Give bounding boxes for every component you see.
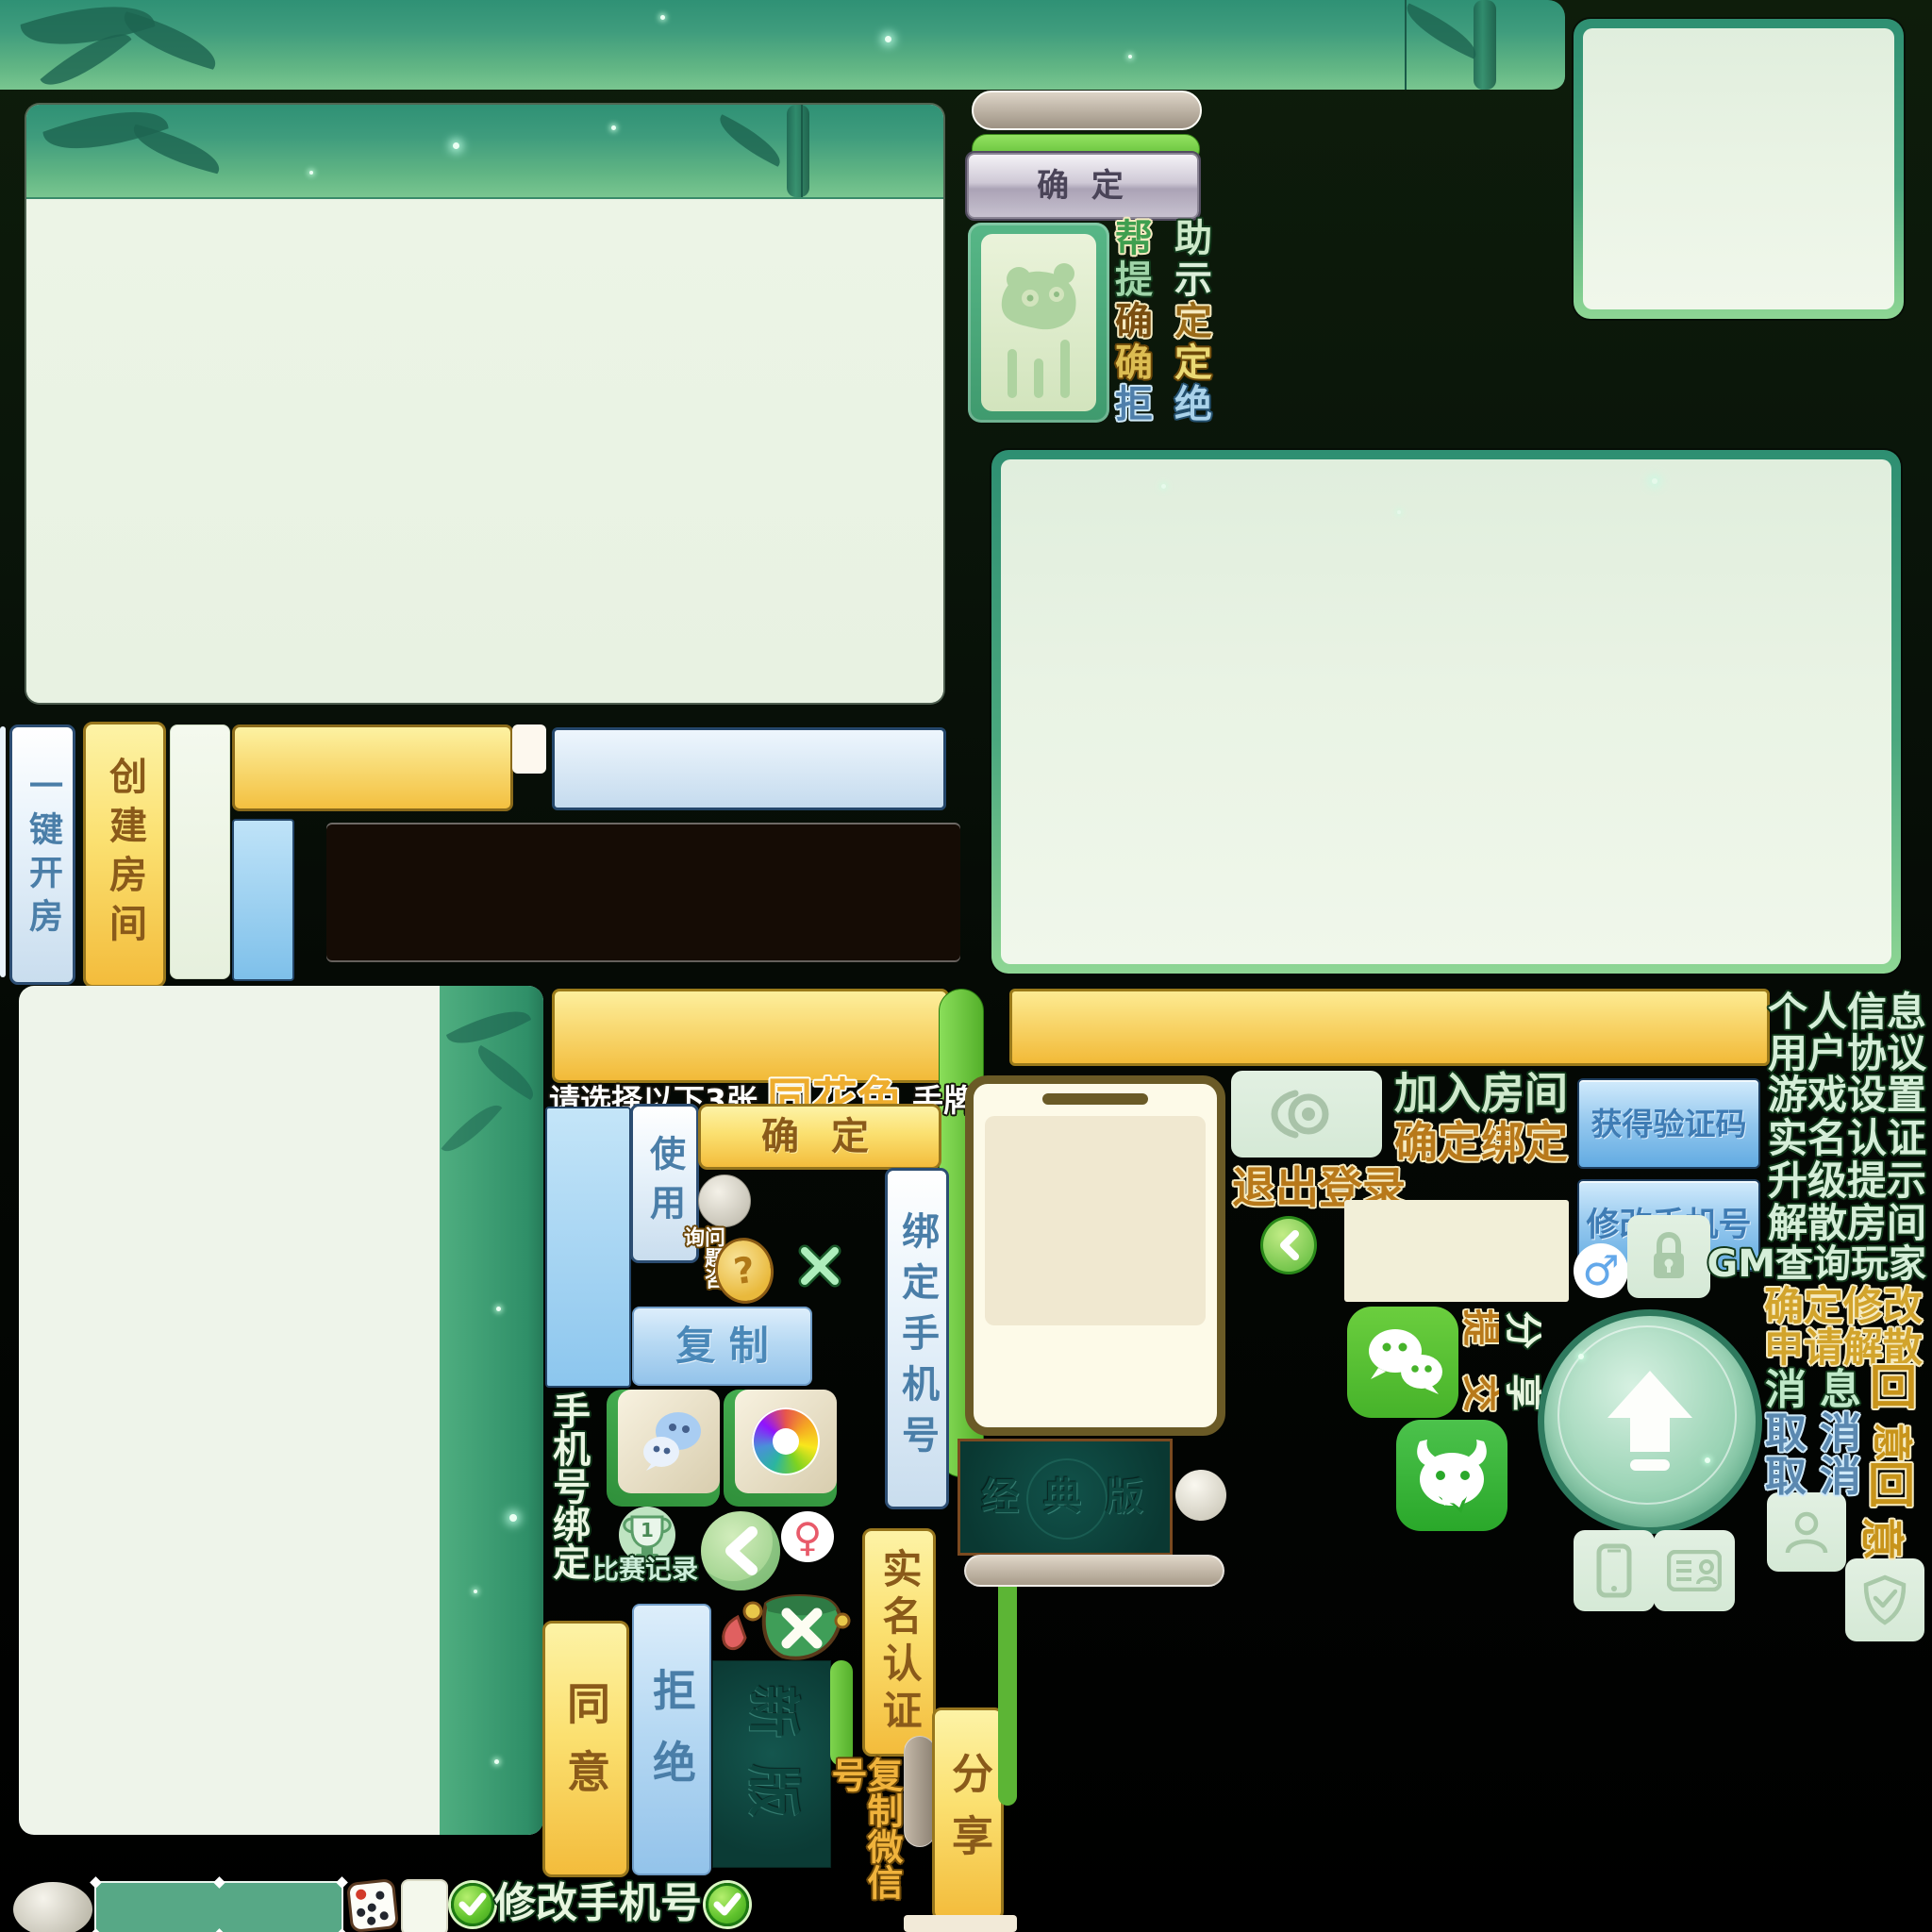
upload-circle-button[interactable] (1538, 1309, 1762, 1534)
msg-char-1: 消 (1765, 1370, 1807, 1411)
confirm-bind-label: 确定绑定 (1394, 1121, 1568, 1164)
word-pair-column-b: 助 示 定 定 绝 (1173, 220, 1214, 424)
green-pill-small (830, 1660, 853, 1766)
cancel1-char-2: 消 (1820, 1413, 1861, 1455)
male-symbol: ♂ (1582, 1247, 1619, 1295)
agree-label: 同意 (564, 1681, 608, 1817)
phone-screen (985, 1116, 1206, 1325)
blue-tall-tile (545, 1107, 631, 1388)
back-chevron-small-button[interactable] (1260, 1216, 1317, 1274)
agree-rot-char-2: 意 (1860, 1517, 1904, 1560)
confirm-grey-label: 确 定 (1037, 170, 1129, 202)
realname-auth-label: 实名认证 (879, 1548, 919, 1737)
word-pair-column-a: 帮 提 确 确 拒 (1113, 220, 1155, 424)
use-label: 使用 (647, 1135, 683, 1233)
shield-check-icon (1861, 1574, 1908, 1626)
question-mark: ? (731, 1249, 758, 1293)
check-icon-right[interactable] (706, 1883, 749, 1926)
banner-strip (0, 0, 1565, 90)
aperture-camera-icon (752, 1407, 820, 1475)
cream-sliver (904, 1915, 1017, 1932)
refuse-button[interactable]: 拒绝 (632, 1604, 711, 1875)
white-tile-small (401, 1879, 448, 1932)
grey-pill-vertical (904, 1736, 936, 1847)
person-tile-button[interactable] (1767, 1492, 1846, 1572)
menu-user-agreement: 用户协议 (1768, 1034, 1926, 1074)
realname-auth-button[interactable]: 实名认证 (862, 1528, 936, 1757)
upload-arrow-icon (1598, 1365, 1702, 1478)
join-room-label: 加入房间 (1394, 1072, 1568, 1115)
share-rot-char-2: 享 (1500, 1370, 1541, 1411)
confirm-button-yellow[interactable]: 确 定 (698, 1104, 941, 1170)
back-chevron-button[interactable] (701, 1511, 780, 1591)
bind-phone-button[interactable]: 绑定手机号 (885, 1168, 949, 1509)
right-large-panel (991, 450, 1901, 974)
white-orb (1175, 1470, 1226, 1521)
grey-orb (698, 1174, 751, 1227)
selection-frame[interactable] (94, 1881, 343, 1932)
small-white-tab (512, 724, 546, 774)
create-room-label: 创建房间 (106, 757, 143, 953)
wechat-big-icon (1359, 1323, 1446, 1402)
phone-mockup (965, 1075, 1225, 1436)
banner-seam (1405, 0, 1407, 90)
match-record-label: 比赛记录 (592, 1557, 698, 1583)
person-icon (1782, 1507, 1831, 1557)
grey-oval (13, 1882, 92, 1932)
phone-bind-label: 手机号绑定 (543, 1391, 587, 1599)
female-icon[interactable]: ♀ (781, 1511, 834, 1562)
cancel2-char-1: 取 (1765, 1457, 1807, 1498)
copy-button[interactable]: 复 制 (632, 1307, 812, 1386)
blue-strip-vertical (232, 819, 294, 981)
one-key-open-room-button[interactable]: 一键开房 (9, 724, 75, 985)
menu-dissolve-room: 解散房间 (1768, 1204, 1926, 1243)
blue-bar-button[interactable] (552, 727, 946, 810)
camera-tile-button[interactable] (724, 1390, 837, 1507)
share-rot-char-1: 分 (1500, 1311, 1541, 1353)
new-version-panel: 新版 (712, 1660, 831, 1868)
progress-track-pill (972, 91, 1202, 130)
modify-phone-bottom-label: 修改手机号 (494, 1883, 702, 1924)
one-key-open-room-label: 一键开房 (25, 768, 59, 941)
label-confirm2-b: 定 (1173, 344, 1214, 382)
submit-char-2: 交 (1457, 1371, 1499, 1412)
smartphone-icon (1595, 1543, 1633, 1598)
bull-chat-icon (1407, 1432, 1497, 1519)
recall-char-1: 回 (1870, 1364, 1917, 1411)
cream-rect (1344, 1200, 1569, 1302)
label-hint-b: 示 (1173, 261, 1214, 299)
cancel2-char-2: 消 (1820, 1457, 1861, 1498)
dice-cup-icon[interactable] (709, 1591, 860, 1664)
check-icon-left[interactable] (451, 1883, 494, 1926)
match-record-button[interactable]: 1 比赛记录 (592, 1506, 704, 1587)
copy-wechat-id-label: 复制微信号 (858, 1757, 900, 1932)
dark-inset-panel (326, 823, 960, 962)
confirm-button-grey[interactable]: 确 定 (967, 153, 1199, 219)
copy-label: 复 制 (675, 1326, 769, 1366)
smartphone-tile-button[interactable] (1574, 1530, 1655, 1611)
bind-phone-label: 绑定手机号 (898, 1211, 936, 1466)
new-version-label: 新版 (745, 1685, 798, 1843)
get-verify-code-label: 获得验证码 (1591, 1108, 1747, 1140)
left-edge-sliver (0, 726, 6, 977)
bottom-left-panel (19, 986, 543, 1835)
label-help-a: 帮 (1113, 220, 1155, 258)
id-card-tile-button[interactable] (1654, 1530, 1735, 1611)
main-dialog-header (26, 105, 943, 199)
sprite-atlas-sheet: 确 定 帮 提 确 确 拒 助 示 定 定 绝 (0, 0, 1932, 1932)
bamboo-side-column (440, 986, 543, 1835)
label-confirm1-a: 确 (1113, 303, 1155, 341)
top-right-panel (1574, 19, 1904, 319)
main-dialog-panel (26, 105, 943, 703)
refuse-label: 拒绝 (650, 1668, 693, 1811)
share-button[interactable]: 分享 (932, 1707, 1004, 1921)
svg-text:1: 1 (641, 1519, 654, 1541)
yellow-bar-button[interactable] (232, 724, 513, 811)
male-icon[interactable]: ♂ (1574, 1243, 1628, 1298)
lock-icon (1647, 1231, 1690, 1282)
wechat-share-button[interactable] (1347, 1307, 1458, 1418)
label-confirm1-b: 定 (1173, 303, 1214, 341)
bull-chat-button[interactable] (1396, 1420, 1507, 1531)
menu-realname-auth: 实名认证 (1768, 1119, 1926, 1158)
tan-pill-bar (964, 1555, 1224, 1587)
replay-tile-button[interactable] (1231, 1071, 1382, 1158)
label-refuse-b: 绝 (1173, 386, 1214, 424)
blank-vertical-button[interactable] (170, 724, 230, 979)
middle-yellow-header (552, 989, 949, 1083)
back-chevron-icon (720, 1526, 761, 1575)
get-verify-code-button[interactable]: 获得验证码 (1577, 1078, 1760, 1169)
dice-icon (347, 1879, 398, 1932)
share-label: 分享 (947, 1752, 989, 1876)
right-yellow-header (1009, 989, 1770, 1066)
menu-personal-info: 个人信息 (1768, 992, 1926, 1032)
submit-char-1: 提 (1457, 1308, 1499, 1350)
agree-rot-char-1: 意 (1872, 1423, 1911, 1462)
menu-game-settings: 游戏设置 (1768, 1075, 1926, 1115)
recall-char-2: 回 (1868, 1462, 1915, 1509)
phone-speaker (1042, 1093, 1148, 1105)
close-x-icon[interactable] (797, 1243, 842, 1289)
back-chevron-small-icon (1276, 1230, 1301, 1260)
replay-camera-icon (1267, 1086, 1346, 1142)
agree-button[interactable]: 同意 (542, 1621, 629, 1877)
msg-char-2: 息 (1820, 1370, 1861, 1411)
panda-glyph (981, 234, 1096, 411)
wechat-icon (635, 1407, 707, 1478)
female-symbol: ♀ (793, 1514, 823, 1560)
shield-tile-button[interactable] (1845, 1558, 1924, 1641)
menu-gm-query: GM查询玩家 (1707, 1245, 1926, 1283)
confirm-yellow-label: 确 定 (761, 1118, 878, 1156)
label-confirm2-a: 确 (1113, 344, 1155, 382)
cancel1-char-1: 取 (1765, 1413, 1807, 1455)
wechat-tile-button[interactable] (607, 1390, 720, 1507)
create-room-button[interactable]: 创建房间 (83, 722, 166, 988)
classic-version-label: 经 典 版 (981, 1478, 1149, 1516)
label-refuse-a: 拒 (1113, 386, 1155, 424)
classic-version-plate[interactable]: 经 典 版 (958, 1439, 1173, 1556)
id-card-icon (1667, 1550, 1722, 1591)
lock-tile-button[interactable] (1627, 1215, 1710, 1298)
panda-tile-icon[interactable] (968, 223, 1109, 423)
menu-upgrade-hint: 升级提示 (1768, 1161, 1926, 1201)
label-help-b: 助 (1173, 220, 1214, 258)
label-hint-a: 提 (1113, 261, 1155, 299)
label-confirm-modify: 确定修改 (1764, 1287, 1923, 1326)
